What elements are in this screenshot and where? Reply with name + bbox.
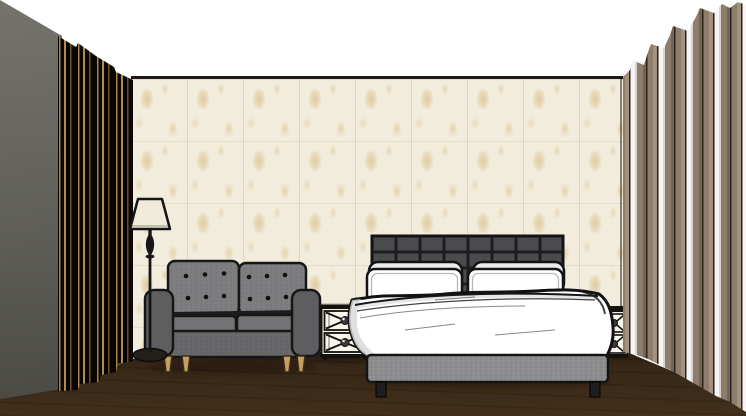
floor-lamp xyxy=(126,196,174,368)
lamp-stem xyxy=(149,256,152,353)
left-curtain xyxy=(56,34,136,394)
lamp-baluster xyxy=(146,233,154,256)
left-wall xyxy=(0,0,64,400)
lamp-shade xyxy=(130,199,170,229)
bed xyxy=(345,230,620,400)
duvet xyxy=(349,290,613,357)
bed-base xyxy=(367,355,608,382)
right-curtain xyxy=(618,0,746,416)
sofa-wood-legs xyxy=(164,356,305,372)
bed-leg-left xyxy=(376,382,386,397)
scene-root xyxy=(0,0,746,416)
bed-leg-right xyxy=(590,382,600,397)
sofa-arm-right xyxy=(292,290,320,356)
